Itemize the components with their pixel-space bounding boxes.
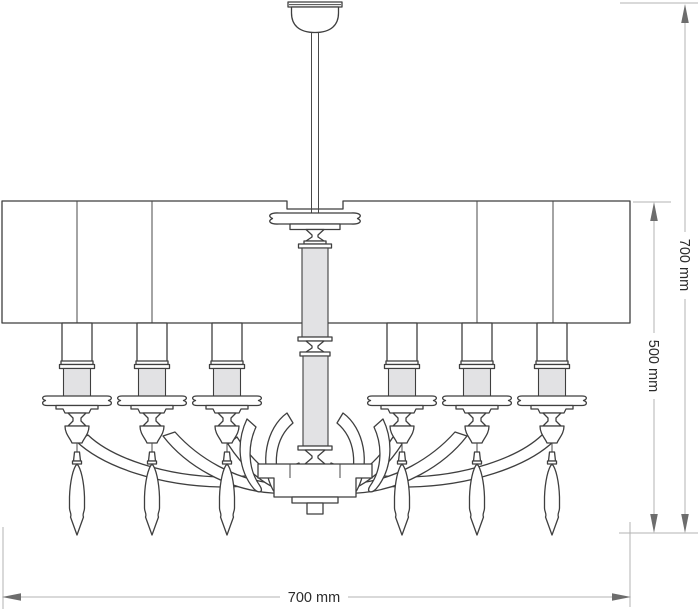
dimension-total-height: 700 mm <box>676 4 692 533</box>
canopy-bell <box>292 7 339 33</box>
column-spool <box>305 450 325 464</box>
dimension-width: 700 mm <box>2 590 631 606</box>
central-hub <box>258 464 372 514</box>
hub-body <box>258 464 372 497</box>
dimension-body-height: 500 mm <box>645 202 661 533</box>
column-spool <box>306 341 324 352</box>
width-label: 700 mm <box>288 590 340 606</box>
total-height-label: 700 mm <box>676 239 692 291</box>
arm-set-left <box>76 413 307 496</box>
ceiling-canopy <box>288 2 342 213</box>
column-ring <box>299 244 332 248</box>
glass-cylinder-upper <box>302 248 328 337</box>
arrow-right-icon <box>612 593 631 601</box>
candle-arm-unit-1 <box>43 323 112 535</box>
column-plate <box>290 224 340 230</box>
arrow-down-icon <box>650 514 658 533</box>
candle-arm-unit-2 <box>118 323 187 535</box>
glass-cylinder-lower <box>303 356 328 446</box>
arrow-down-icon <box>681 514 689 533</box>
arrow-up-icon <box>650 202 658 221</box>
hub-finial-stub <box>307 503 323 514</box>
candle-arm-unit-6 <box>518 323 587 535</box>
chandelier-dimension-drawing: 700 mm 500 mm 700 mm <box>0 0 700 612</box>
hanging-rod <box>312 33 319 214</box>
body-height-label: 500 mm <box>645 340 661 392</box>
arrow-left-icon <box>2 593 21 601</box>
arrow-up-icon <box>681 4 689 23</box>
arm-set-right <box>323 413 554 496</box>
column-ring <box>300 352 330 356</box>
candle-arm-unit-5 <box>443 323 512 535</box>
hub-plate <box>292 497 338 503</box>
scroll-bar-ornament <box>270 213 361 224</box>
drawing-canvas: 700 mm 500 mm 700 mm <box>0 0 700 612</box>
